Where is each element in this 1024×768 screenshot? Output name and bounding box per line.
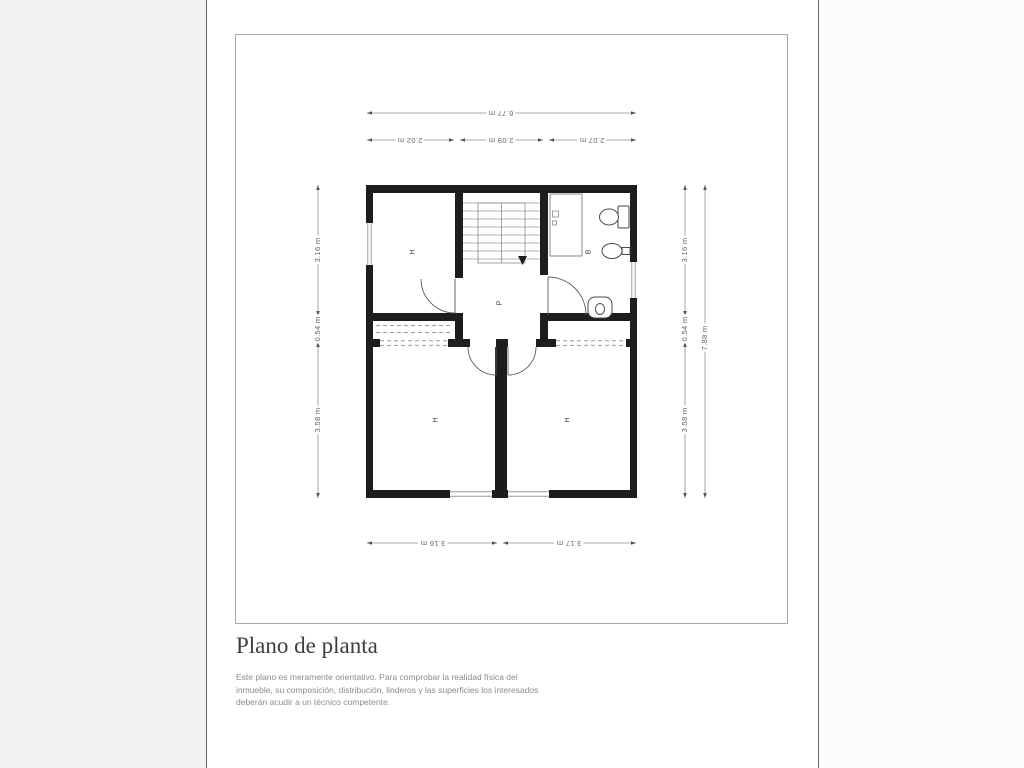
door-arc-room-top-left <box>421 279 455 313</box>
room-label-top-left: H <box>410 249 417 254</box>
dimension-lines <box>318 113 705 543</box>
dimension-arrows <box>316 111 707 545</box>
room-label-hallway: P <box>497 301 504 306</box>
disclaimer-line-3: deberán acudir a un técnico competente. <box>236 696 538 709</box>
page-left-margin <box>0 0 207 768</box>
stairs-icon <box>463 203 540 265</box>
dim-top-3: 2.07 m <box>578 136 607 144</box>
floor-plan-page: 6.77 m 2.02 m 2.09 m 2.07 m 3.16 m 0.54 … <box>0 0 1024 768</box>
dim-left-3: 3.58 m <box>314 406 322 435</box>
dim-bottom-1: 3.16 m <box>419 539 448 547</box>
dim-left-2: 0.54 m <box>314 315 322 344</box>
dim-bottom-2: 3.17 m <box>555 539 584 547</box>
sink-icon <box>602 244 630 259</box>
page-title: Plano de planta <box>236 633 378 659</box>
dim-right-1: 3.16 m <box>681 236 689 265</box>
dim-right-3: 3.58 m <box>681 406 689 435</box>
disclaimer-line-2: inmueble, su composición, distribución, … <box>236 684 538 697</box>
door-arc-room-bottom-right <box>508 347 536 375</box>
dim-left-1: 3.16 m <box>314 236 322 265</box>
disclaimer-line-1: Este plano es meramente orientativo. Par… <box>236 671 538 684</box>
dim-top-total: 6.77 m <box>487 109 516 117</box>
room-label-bathroom: B <box>586 250 593 255</box>
page-right-margin <box>818 0 1024 768</box>
dim-top-2: 2.09 m <box>487 136 516 144</box>
dim-right-2: 0.54 m <box>681 315 689 344</box>
stair-direction-arrow <box>518 256 527 265</box>
bathroom-fixtures <box>550 194 630 318</box>
dim-top-1: 2.02 m <box>396 136 425 144</box>
toilet-icon <box>600 206 630 228</box>
dim-right-total: 7.88 m <box>701 324 709 353</box>
door-arc-bathroom <box>548 277 586 315</box>
bidet-icon <box>588 297 612 318</box>
door-arc-room-bottom-left <box>468 347 496 375</box>
disclaimer-text: Este plano es meramente orientativo. Par… <box>236 671 538 709</box>
room-label-bottom-left: H <box>433 417 440 422</box>
room-label-bottom-right: H <box>565 417 572 422</box>
